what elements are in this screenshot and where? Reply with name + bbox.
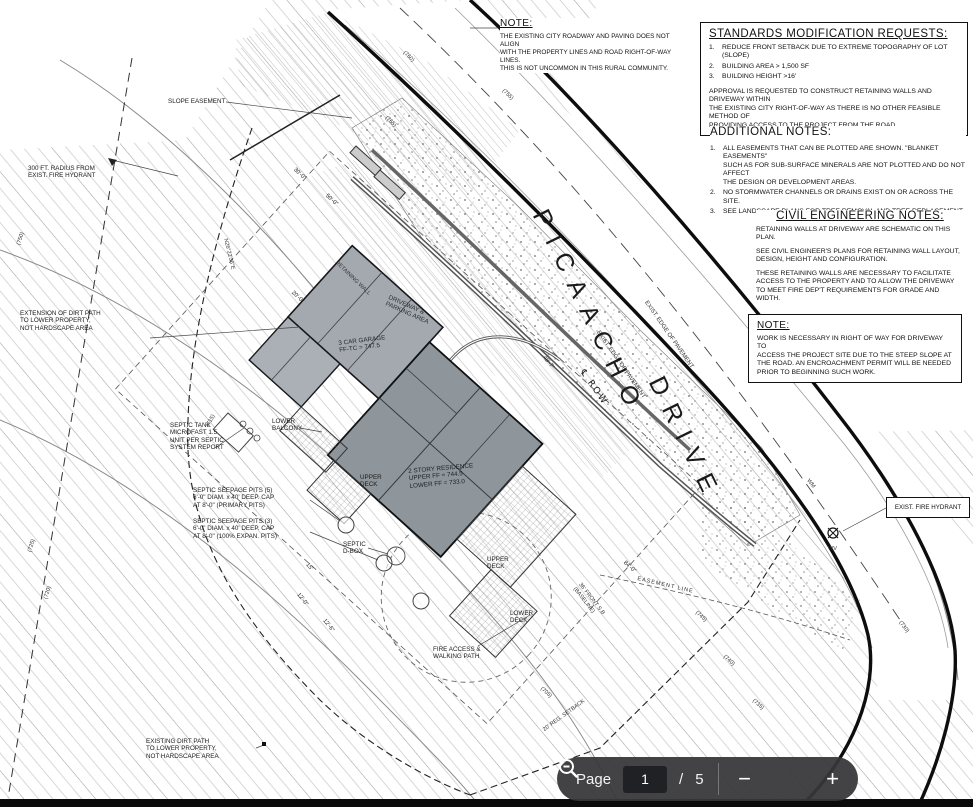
existing-dirt-path-label: EXISTING DIRT PATH TO LOWER PROPERTY, NO… <box>146 738 219 760</box>
pdf-toolbar: Page / 5 − + <box>557 757 858 801</box>
slope-easement-label: SLOPE EASEMENT <box>168 98 225 105</box>
civil-notes-paragraph: SEE CIVIL ENGINEER'S PLANS FOR RETAINING… <box>756 248 964 265</box>
fire-access-label: FIRE ACCESS & WALKING PATH <box>433 646 481 661</box>
septic-pits-expansion-label: SEPTIC SEEPAGE PITS (3) 6'-0" DIAM. x 40… <box>193 518 277 540</box>
additional-note-item: 2. NO STORMWATER CHANNELS OR DRAINS EXIS… <box>710 189 966 206</box>
zoom-in-button[interactable]: + <box>811 757 855 801</box>
civil-notes-paragraph: THESE RETAINING WALLS ARE NECESSARY TO F… <box>756 270 964 304</box>
site-plan-page: SLOPE EASEMENT 300 FT. RADIUS FROM EXIST… <box>0 0 973 807</box>
septic-tank-label: SEPTIC TANK MICROFAST 1.5 UNIT PER SEPTI… <box>170 422 224 452</box>
septic-dbox-label: SEPTIC D-BOX <box>343 541 366 556</box>
upper-deck-east-label: UPPER DECK <box>487 556 509 571</box>
septic-pits-primary-label: SEPTIC SEEPAGE PITS (5) 6'-0" DIAM. x 40… <box>193 487 274 509</box>
additional-note-item: 1. ALL EASEMENTS THAT CAN BE PLOTTED ARE… <box>710 145 966 187</box>
extension-dirt-path-label: EXTENSION OF DIRT PATH TO LOWER PROPERTY… <box>20 310 101 332</box>
civil-engineering-notes: CIVIL ENGINEERING NOTES: RETAINING WALLS… <box>756 210 964 304</box>
toolbar-divider <box>718 763 719 795</box>
fire-hydrant-radius-label: 300 FT. RADIUS FROM EXIST. FIRE HYDRANT <box>28 165 96 180</box>
lower-balcony-label: LOWER BALCONY <box>272 418 302 433</box>
exist-fire-hydrant-text: EXIST. FIRE HYDRANT <box>895 504 961 511</box>
exist-fire-hydrant-callout: EXIST. FIRE HYDRANT <box>886 497 970 518</box>
standards-paragraph: APPROVAL IS REQUESTED TO CONSTRUCT RETAI… <box>709 88 959 130</box>
zoom-out-button[interactable]: − <box>723 757 767 801</box>
total-pages: 5 <box>695 771 703 788</box>
page-divider: / <box>679 771 683 788</box>
upper-deck-west-label: UPPER DECK <box>360 474 382 489</box>
top-note-body: THE EXISTING CITY ROADWAY AND PAVING DOE… <box>500 33 678 73</box>
row-note-title: NOTE: <box>757 320 953 331</box>
standards-modification-box: STANDARDS MODIFICATION REQUESTS: 1. REDU… <box>700 22 968 136</box>
additional-notes: ADDITIONAL NOTES: 1. ALL EASEMENTS THAT … <box>710 126 966 219</box>
page-label: Page <box>576 771 611 788</box>
standards-item: 3. BUILDING HEIGHT >16' <box>709 73 959 81</box>
civil-notes-paragraph: RETAINING WALLS AT DRIVEWAY ARE SCHEMATI… <box>756 226 964 243</box>
civil-notes-title: CIVIL ENGINEERING NOTES: <box>756 210 964 222</box>
standards-item: 1. REDUCE FRONT SETBACK DUE TO EXTREME T… <box>709 44 959 61</box>
page-number-input[interactable] <box>623 766 667 793</box>
zoom-button[interactable] <box>767 757 811 801</box>
standards-title: STANDARDS MODIFICATION REQUESTS: <box>709 28 959 40</box>
water-valve-label: WV <box>828 546 837 553</box>
top-note: NOTE: THE EXISTING CITY ROADWAY AND PAVI… <box>500 18 678 73</box>
additional-notes-title: ADDITIONAL NOTES: <box>710 126 966 138</box>
row-note-body: WORK IS NECESSARY IN RIGHT OF WAY FOR DR… <box>757 335 953 377</box>
standards-item: 2. BUILDING AREA > 1,500 SF <box>709 63 959 71</box>
lower-deck-label: LOWER DECK <box>510 610 533 625</box>
top-note-title: NOTE: <box>500 18 678 29</box>
row-note-box: NOTE: WORK IS NECESSARY IN RIGHT OF WAY … <box>748 314 962 383</box>
